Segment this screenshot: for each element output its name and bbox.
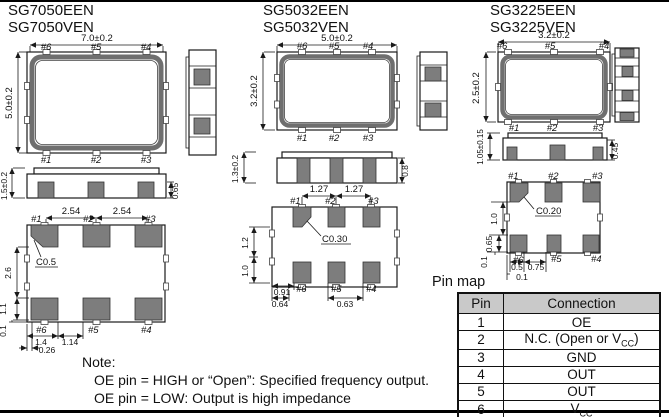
dim-thickness: 1.5±0.2 bbox=[0, 172, 9, 201]
sg7050-side-view: 1.5±0.2 0.65 bbox=[0, 168, 180, 200]
package-title-line1: SG5032EEN bbox=[263, 2, 349, 19]
sg3225-end-view bbox=[612, 48, 639, 122]
sg5032-top-view: 5.0±0.2 3.2±0.2 #6 #5 #4 #1 #2 #3 bbox=[249, 33, 400, 144]
pad-label: #6 bbox=[41, 42, 52, 53]
pin-map-section: Pin map Pin Connection 1 OE 2 N.C. (Open… bbox=[432, 274, 661, 417]
pin-map-row-2: 2 N.C. (Open or VCC) bbox=[458, 331, 660, 350]
dim-pad-height: 0.45 bbox=[610, 142, 620, 159]
connection-text: ) bbox=[634, 331, 639, 346]
pad-label: #2 bbox=[83, 214, 94, 225]
dim-height: 3.2±0.2 bbox=[249, 75, 260, 107]
pin-map-header-pin: Pin bbox=[458, 293, 504, 314]
sg3225-top-view: 3.2±0.2 2.5±0.2 #6 #5 #4 #1 #2 #3 bbox=[471, 30, 613, 134]
package-title-line1: SG7050EEN bbox=[8, 2, 94, 19]
dim-pad-height: 0.8 bbox=[400, 165, 410, 177]
pad-label: #2 bbox=[547, 123, 558, 134]
connection-text-overline: OUT bbox=[567, 384, 596, 399]
dim-pitch: 2.54 bbox=[62, 206, 81, 217]
dim-bottom: 0.75 bbox=[528, 262, 545, 272]
dim-width: 3.2±0.2 bbox=[538, 30, 570, 41]
dim-thickness: 1.3±0.2 bbox=[230, 155, 240, 184]
pin-number: 4 bbox=[458, 366, 504, 383]
sg5032-drawing: SG5032EEN SG5032VEN 5.0±0.2 3.2±0.2 #6 #… bbox=[230, 0, 460, 310]
pad-label: #3 bbox=[592, 171, 603, 182]
sg7050-top-view: 7.0±0.2 5.0±0.2 #6 #5 #4 #1 #2 #3 bbox=[4, 33, 169, 166]
pad-label: #6 bbox=[497, 41, 508, 52]
connection-subscript: CC bbox=[621, 339, 634, 349]
chamfer-label: C0.30 bbox=[322, 234, 347, 245]
package-title-line1: SG3225EEN bbox=[490, 2, 576, 19]
pin-map-row-5: 5 OUT bbox=[458, 383, 660, 400]
dim-left: 0.65 bbox=[484, 235, 494, 252]
pin-connection: OUT bbox=[504, 366, 661, 383]
dim-bottom: 1.14 bbox=[62, 337, 79, 347]
pad-label: #3 bbox=[593, 123, 604, 134]
dim-pad-height: 0.65 bbox=[170, 182, 180, 199]
pad-label: #1 bbox=[31, 214, 42, 225]
pad-label: #6 bbox=[296, 284, 307, 295]
dim-height: 5.0±0.2 bbox=[4, 87, 15, 119]
pad-label: #6 bbox=[297, 41, 308, 52]
pad-label: #6 bbox=[36, 325, 47, 336]
dim-pitch: 1.27 bbox=[345, 184, 364, 195]
connection-subscript: CC bbox=[580, 408, 593, 417]
dim-left: 1.2 bbox=[240, 237, 250, 249]
dim-left: 1.0 bbox=[489, 213, 499, 225]
dim-thickness: 1.05±0.15 bbox=[476, 129, 485, 165]
sg7050-drawing: SG7050EEN SG7050VEN 7.0±0.2 5.0±0.2 #6 #… bbox=[0, 0, 230, 360]
pin-connection: VCC bbox=[504, 400, 661, 417]
pin-map-table: Pin Connection 1 OE 2 N.C. (Open or VCC)… bbox=[457, 292, 661, 417]
dim-pitch: 2.54 bbox=[113, 206, 132, 217]
pad-label: #5 bbox=[331, 284, 342, 295]
pin-map-row-6: 6 VCC bbox=[458, 400, 660, 417]
pin-number: 2 bbox=[458, 331, 504, 350]
note-line: OE pin = HIGH or “Open”: Specified frequ… bbox=[94, 371, 429, 389]
dim-bottom: 0.64 bbox=[272, 299, 289, 309]
pin-connection: OUT bbox=[504, 383, 661, 400]
pin-number: 1 bbox=[458, 314, 504, 331]
pad-label: #4 bbox=[141, 325, 152, 336]
pin-map-title: Pin map bbox=[432, 274, 661, 290]
dim-bottom: 0.63 bbox=[337, 299, 354, 309]
sg3225-bottom-view: #1 #2 #3 C0.20 1.0 0.65 0.1 #6 bbox=[479, 171, 603, 282]
pad-label: #4 bbox=[591, 254, 602, 265]
pin-map-header-connection: Connection bbox=[504, 293, 661, 314]
pad-label: #1 bbox=[297, 133, 308, 144]
pin-map-header-row: Pin Connection bbox=[458, 293, 660, 314]
sg7050-bottom-view: 2.54 2.54 #1 #2 #3 C0.5 2.6 bbox=[0, 206, 169, 355]
note-section: Note: OE pin = HIGH or “Open”: Specified… bbox=[82, 353, 429, 407]
pad-label: #4 bbox=[141, 42, 152, 53]
pad-label: #5 bbox=[329, 41, 340, 52]
pin-map-row-1: 1 OE bbox=[458, 314, 660, 331]
pad-label: #4 bbox=[363, 41, 374, 52]
sg3225-side-view: 1.05±0.15 0.45 bbox=[476, 129, 620, 165]
dim-height: 2.5±0.2 bbox=[471, 72, 482, 104]
note-heading: Note: bbox=[82, 353, 429, 371]
pad-label: #1 bbox=[41, 155, 52, 166]
dim-bottom: 0.91 bbox=[274, 287, 291, 297]
pad-label: #2 bbox=[329, 133, 340, 144]
connection-text: N.C. (Open or V bbox=[524, 331, 621, 346]
pad-label: #2 bbox=[91, 155, 102, 166]
pin-map-row-3: 3 GND bbox=[458, 349, 660, 366]
chamfer-label: C0.20 bbox=[536, 206, 561, 217]
dim-pitch: 1.27 bbox=[310, 184, 329, 195]
pad-label: #5 bbox=[545, 41, 556, 52]
dim-left: 2.6 bbox=[3, 267, 13, 279]
pad-label: #5 bbox=[88, 325, 99, 336]
dim-bottom: 0.5 bbox=[511, 262, 523, 272]
dim-bottom: 0.26 bbox=[39, 345, 56, 355]
sg5032-side-view: 1.3±0.2 0.8 bbox=[230, 152, 410, 183]
dim-left: 0.1 bbox=[0, 325, 8, 337]
pad-label: #4 bbox=[366, 284, 377, 295]
datasheet-figure: SG7050EEN SG7050VEN 7.0±0.2 5.0±0.2 #6 #… bbox=[0, 0, 669, 417]
sg3225-drawing: SG3225EEN SG3225VEN 3.2±0.2 2.5±0.2 #6 #… bbox=[460, 0, 669, 290]
pin-connection: GND bbox=[504, 349, 661, 366]
pad-label: #5 bbox=[551, 254, 562, 265]
pin-connection: OE bbox=[504, 314, 661, 331]
pin-number: 6 bbox=[458, 400, 504, 417]
pin-number: 5 bbox=[458, 383, 504, 400]
chamfer-label: C0.5 bbox=[36, 257, 56, 268]
pin-number: 3 bbox=[458, 349, 504, 366]
note-line: OE pin = LOW: Output is high impedance bbox=[94, 389, 429, 407]
pad-label: #5 bbox=[91, 42, 102, 53]
pad-label: #1 bbox=[509, 123, 520, 134]
pad-label: #3 bbox=[363, 133, 374, 144]
pin-map-row-4: 4 OUT bbox=[458, 366, 660, 383]
dim-left: 1.1 bbox=[0, 303, 8, 315]
sg7050-end-view bbox=[186, 50, 216, 155]
dim-left: 0.1 bbox=[479, 256, 489, 268]
connection-text: V bbox=[570, 401, 579, 416]
sg5032-bottom-view: 1.27 1.27 #1 #2 #3 C0.30 1.2 1.0 bbox=[240, 184, 400, 309]
sg5032-end-view bbox=[417, 52, 447, 130]
pad-label: #4 bbox=[599, 41, 610, 52]
pin-connection: N.C. (Open or VCC) bbox=[504, 331, 661, 350]
pad-label: #3 bbox=[141, 155, 152, 166]
dim-left: 1.0 bbox=[240, 265, 250, 277]
